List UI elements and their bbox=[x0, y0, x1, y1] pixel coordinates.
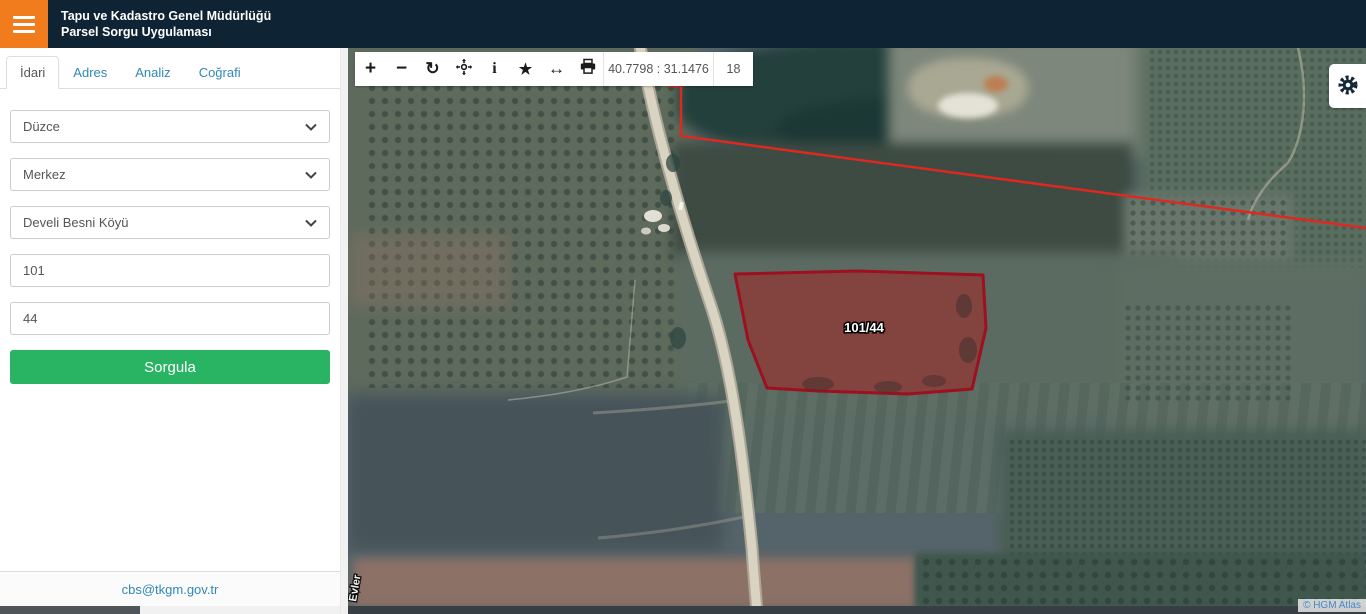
zoom-in-button[interactable]: + bbox=[355, 52, 386, 86]
trail-path bbox=[1248, 48, 1304, 220]
tree-canopy bbox=[874, 381, 902, 393]
query-button[interactable]: Sorgula bbox=[10, 350, 330, 384]
info-icon: i bbox=[492, 60, 496, 78]
tab-analiz[interactable]: Analiz bbox=[121, 56, 184, 89]
app-title-line2: Parsel Sorgu Uygulaması bbox=[61, 24, 271, 40]
map-attribution[interactable]: © HGM Atlas bbox=[1298, 599, 1366, 612]
map-tile-edge bbox=[348, 606, 1366, 614]
tree-canopy bbox=[670, 327, 686, 349]
tab-cografi[interactable]: Coğrafi bbox=[185, 56, 255, 89]
zoom-out-icon: − bbox=[396, 58, 407, 80]
zoom-in-icon: + bbox=[365, 58, 376, 80]
zoom-level-readout: 18 bbox=[713, 52, 753, 86]
contact-email-link[interactable]: cbs@tkgm.gov.tr bbox=[122, 582, 219, 597]
tab-adres[interactable]: Adres bbox=[59, 56, 121, 89]
menu-icon[interactable] bbox=[0, 0, 48, 48]
refresh-icon: ↻ bbox=[425, 59, 439, 79]
pan-button[interactable] bbox=[448, 52, 479, 86]
favorite-button[interactable]: ★ bbox=[510, 52, 541, 86]
building-blob bbox=[644, 210, 662, 222]
block-input[interactable] bbox=[10, 254, 330, 287]
info-button[interactable]: i bbox=[479, 52, 510, 86]
district-select[interactable]: Merkez bbox=[10, 158, 330, 191]
vertical-scrollbar[interactable] bbox=[340, 48, 348, 614]
district-select-value: Merkez bbox=[23, 167, 66, 182]
parcel-input[interactable] bbox=[10, 302, 330, 335]
horizontal-scrollbar[interactable] bbox=[0, 606, 348, 614]
branch-road-path bbox=[593, 400, 738, 413]
field-boundary-path bbox=[508, 280, 635, 400]
horizontal-scrollbar-thumb[interactable] bbox=[0, 606, 140, 614]
coordinates-readout: 40.7798 : 31.1476 bbox=[603, 52, 713, 86]
boundary-line bbox=[668, 86, 1366, 228]
parcel-label: 101/44 bbox=[844, 320, 885, 335]
road-path bbox=[640, 48, 757, 614]
tree-canopy bbox=[802, 377, 834, 391]
building-blob bbox=[641, 228, 651, 235]
tree-canopy bbox=[922, 375, 946, 387]
gear-icon bbox=[1337, 74, 1359, 99]
map-vector-overlay: 101/44 Evler bbox=[348, 48, 1366, 614]
province-select[interactable]: Düzce bbox=[10, 110, 330, 143]
sidebar-footer: cbs@tkgm.gov.tr bbox=[0, 571, 340, 606]
measure-icon: ↔ bbox=[548, 59, 565, 79]
province-select-value: Düzce bbox=[23, 119, 60, 134]
chevron-down-icon bbox=[305, 167, 317, 182]
app-title: Tapu ve Kadastro Genel Müdürlüğü Parsel … bbox=[61, 0, 271, 48]
settings-button[interactable] bbox=[1329, 64, 1366, 108]
map-toolbar: + − ↻ i ★ ↔ bbox=[355, 52, 753, 86]
neighborhood-select[interactable]: Develi Besni Köyü bbox=[10, 206, 330, 239]
street-label: Evler bbox=[348, 573, 364, 602]
tab-bar: İdari Adres Analiz Coğrafi bbox=[0, 48, 340, 89]
tree-canopy bbox=[959, 337, 977, 363]
app-title-line1: Tapu ve Kadastro Genel Müdürlüğü bbox=[61, 8, 271, 24]
neighborhood-select-value: Develi Besni Köyü bbox=[23, 215, 129, 230]
measure-button[interactable]: ↔ bbox=[541, 52, 572, 86]
chevron-down-icon bbox=[305, 215, 317, 230]
tree-canopy bbox=[956, 294, 972, 318]
sidebar: İdari Adres Analiz Coğrafi Düzce Merkez bbox=[0, 48, 348, 614]
query-form: Düzce Merkez Develi Besni Köyü bbox=[0, 89, 340, 384]
app-header: Tapu ve Kadastro Genel Müdürlüğü Parsel … bbox=[0, 0, 1366, 48]
chevron-down-icon bbox=[305, 119, 317, 134]
zoom-out-button[interactable]: − bbox=[386, 52, 417, 86]
building-blob bbox=[658, 224, 670, 232]
tree-canopy bbox=[660, 190, 672, 206]
print-button[interactable] bbox=[572, 52, 603, 86]
print-icon bbox=[579, 58, 597, 80]
tab-idari[interactable]: İdari bbox=[6, 56, 59, 89]
branch-road-path bbox=[598, 516, 748, 538]
map-viewport[interactable]: 101/44 Evler + − ↻ i ★ bbox=[348, 48, 1366, 614]
tree-canopy bbox=[666, 154, 680, 172]
favorite-icon: ★ bbox=[519, 60, 532, 78]
pan-icon bbox=[455, 58, 473, 81]
refresh-button[interactable]: ↻ bbox=[417, 52, 448, 86]
